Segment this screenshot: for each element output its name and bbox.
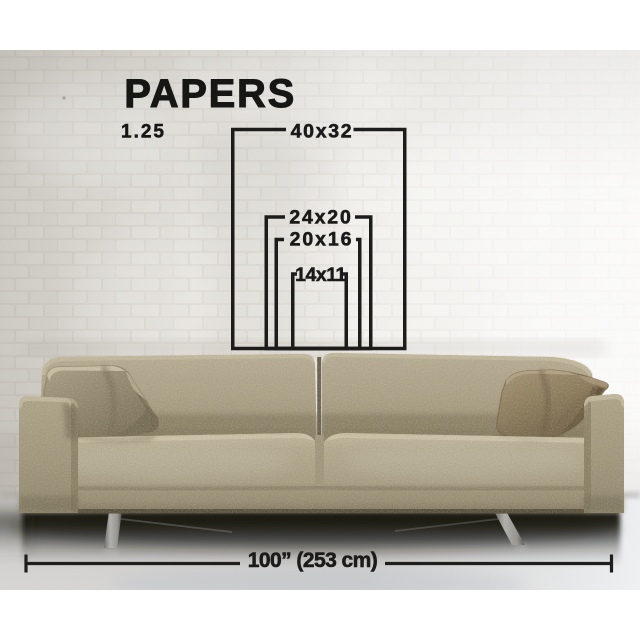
svg-text:24x20: 24x20 <box>289 207 352 229</box>
svg-text:40x32: 40x32 <box>291 121 354 143</box>
svg-text:100” (253 cm): 100” (253 cm) <box>248 549 377 572</box>
svg-text:14x11: 14x11 <box>295 264 346 286</box>
svg-text:1.25: 1.25 <box>121 122 166 143</box>
svg-text:20x16: 20x16 <box>290 229 354 251</box>
svg-text:PAPERS: PAPERS <box>124 72 296 116</box>
